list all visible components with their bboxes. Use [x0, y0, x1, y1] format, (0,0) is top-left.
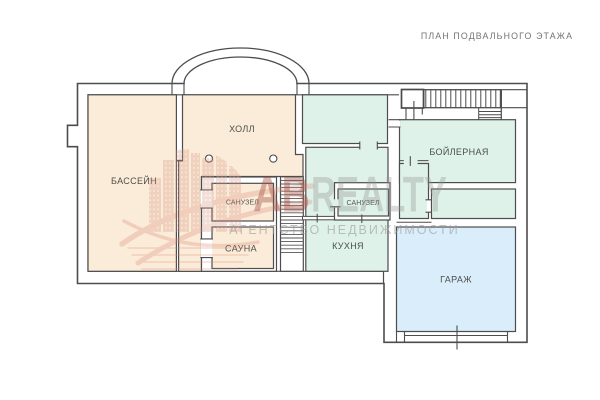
svg-text:АГЕНТСТВО НЕДВИЖИМОСТИ: АГЕНТСТВО НЕДВИЖИМОСТИ — [229, 223, 460, 237]
svg-text:REALTY: REALTY — [311, 167, 447, 223]
svg-text:ПЛАН ПОДВАЛЬНОГО ЭТАЖА: ПЛАН ПОДВАЛЬНОГО ЭТАЖА — [421, 31, 573, 41]
svg-text:ГАРАЖ: ГАРАЖ — [440, 275, 472, 285]
svg-text:КУХНЯ: КУХНЯ — [332, 241, 364, 251]
svg-text:ХОЛЛ: ХОЛЛ — [229, 124, 255, 134]
svg-text:БОЙЛЕРНАЯ: БОЙЛЕРНАЯ — [429, 146, 488, 157]
svg-text:АВ: АВ — [253, 167, 310, 223]
